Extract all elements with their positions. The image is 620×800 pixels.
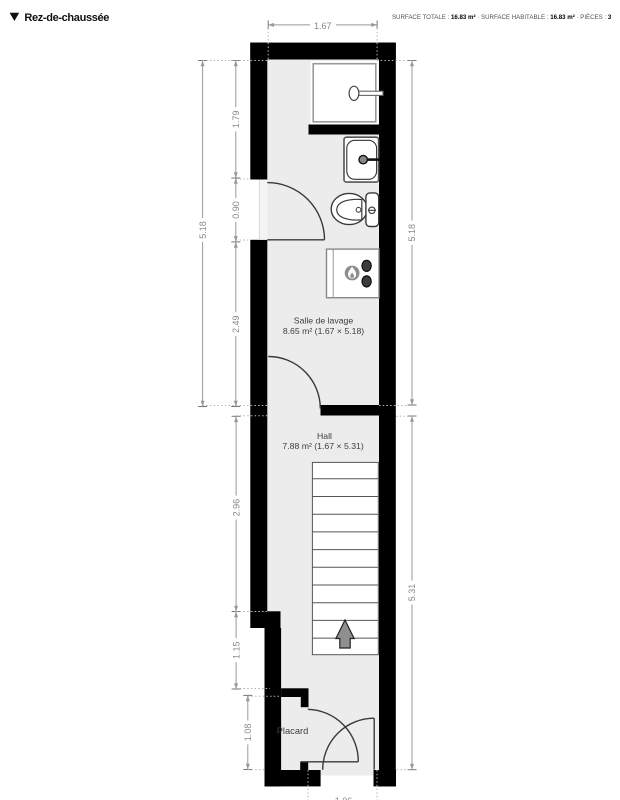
svg-text:7.88 m² (1.67 × 5.31): 7.88 m² (1.67 × 5.31) bbox=[282, 441, 363, 451]
svg-text:8.65 m² (1.67 × 5.18): 8.65 m² (1.67 × 5.18) bbox=[283, 326, 364, 336]
svg-text:Salle de lavage: Salle de lavage bbox=[294, 315, 354, 325]
svg-text:Placard: Placard bbox=[277, 726, 309, 736]
svg-text:5.18: 5.18 bbox=[407, 224, 417, 242]
svg-text:5.31: 5.31 bbox=[407, 584, 417, 602]
svg-text:5.18: 5.18 bbox=[198, 221, 208, 239]
svg-text:2.49: 2.49 bbox=[231, 315, 241, 333]
svg-text:1.06: 1.06 bbox=[335, 796, 353, 800]
svg-text:1.15: 1.15 bbox=[231, 641, 241, 659]
svg-text:1.79: 1.79 bbox=[231, 111, 241, 129]
svg-text:2.96: 2.96 bbox=[231, 499, 241, 517]
svg-text:Hall: Hall bbox=[317, 431, 332, 441]
svg-text:Rez-de-chaussée: Rez-de-chaussée bbox=[24, 12, 109, 24]
svg-text:1.67: 1.67 bbox=[314, 21, 332, 31]
svg-text:1.08: 1.08 bbox=[243, 724, 253, 742]
svg-text:0.90: 0.90 bbox=[231, 201, 241, 219]
svg-text:SURFACE TOTALE : 16.83 m² · SU: SURFACE TOTALE : 16.83 m² · SURFACE HABI… bbox=[392, 14, 612, 21]
